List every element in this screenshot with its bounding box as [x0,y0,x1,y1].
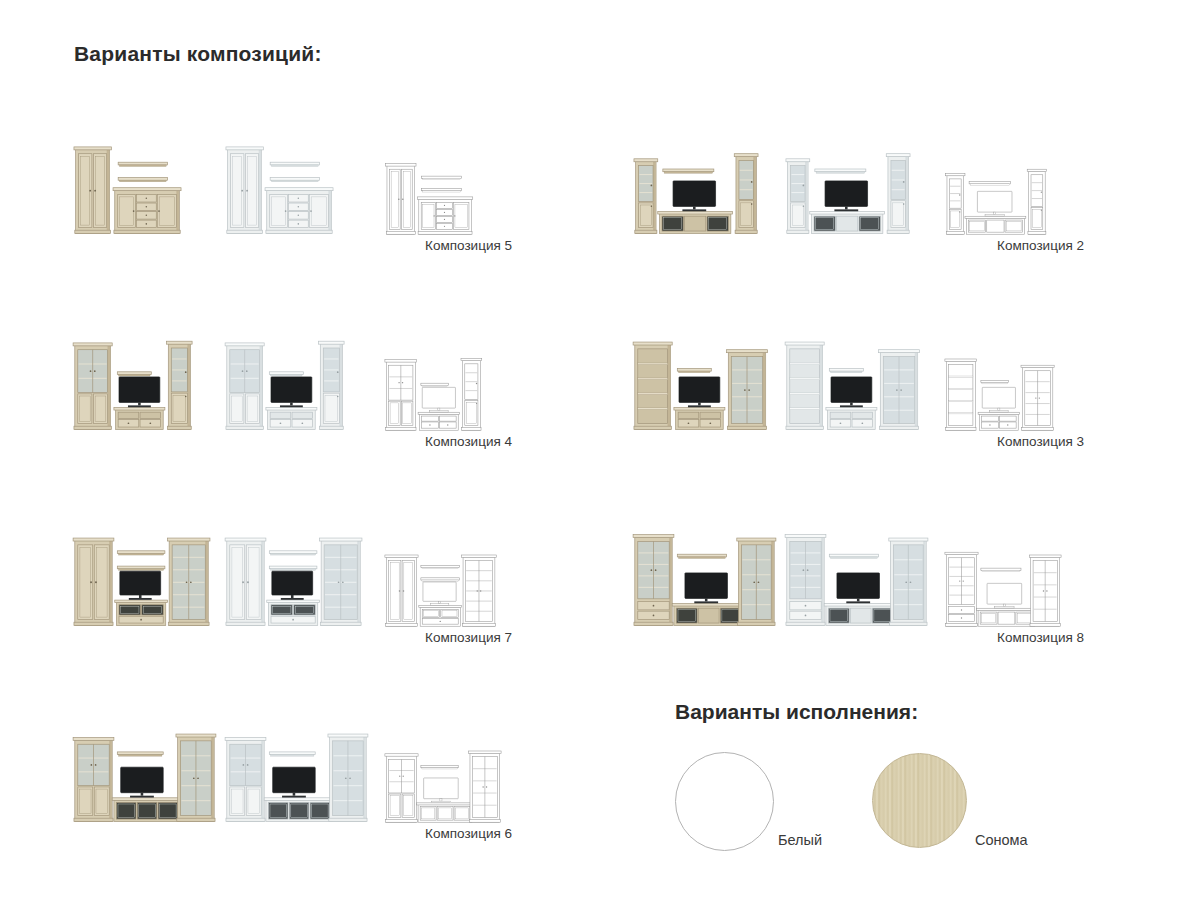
finishes-heading: Варианты исполнения: [675,700,918,724]
composition-group-7: Композиция 7 [72,510,512,645]
composition-group-4: Композиция 4 [72,314,512,449]
composition-group-5: Композиция 5 [72,118,512,253]
furniture-render-outline [944,350,1062,433]
furniture-render-white [224,331,369,433]
composition-label: Композиция 6 [425,826,512,841]
finish-label-sonoma: Сонома [975,832,1028,848]
furniture-render-sonoma [632,331,777,433]
furniture-render-sonoma [72,135,217,237]
furniture-render-sonoma [72,723,217,825]
furniture-render-sonoma [72,331,217,433]
furniture-render-outline [944,154,1062,237]
furniture-render-sonoma [632,135,777,237]
furniture-render-outline [384,154,502,237]
furniture-render-white [784,135,929,237]
composition-group-6: Композиция 6 [72,706,512,841]
furniture-render-outline [384,742,502,825]
finish-swatch-white [675,752,774,851]
furniture-render-white [224,527,369,629]
furniture-render-white [784,527,929,629]
furniture-render-sonoma [632,527,777,629]
composition-label: Композиция 3 [997,434,1084,449]
furniture-render-outline [944,546,1062,629]
composition-label: Композиция 8 [997,630,1084,645]
composition-label: Композиция 2 [997,238,1084,253]
furniture-render-sonoma [72,527,217,629]
composition-group-3: Композиция 3 [632,314,1084,449]
furniture-render-outline [384,350,502,433]
composition-label: Композиция 7 [425,630,512,645]
finish-label-white: Белый [778,832,822,848]
finish-swatch-sonoma [872,753,967,848]
compositions-heading: Варианты композиций: [74,42,322,66]
composition-group-2: Композиция 2 [632,118,1084,253]
composition-label: Композиция 5 [425,238,512,253]
composition-group-8: Композиция 8 [632,510,1084,645]
furniture-render-white [224,135,369,237]
furniture-render-white [224,723,369,825]
composition-label: Композиция 4 [425,434,512,449]
furniture-render-white [784,331,929,433]
furniture-render-outline [384,546,502,629]
finishes-section: Варианты исполнения: Белый Сонома [675,700,1125,890]
